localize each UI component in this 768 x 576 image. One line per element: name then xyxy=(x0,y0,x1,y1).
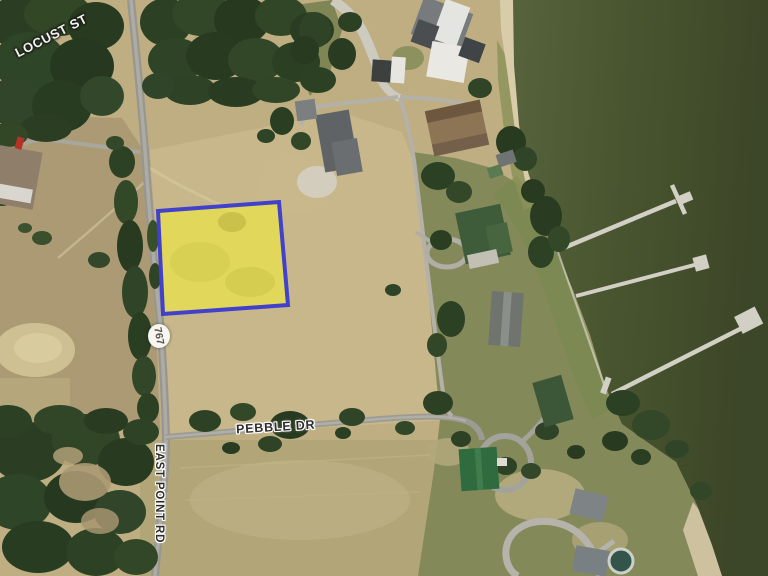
route-767-number: 767 xyxy=(152,326,167,345)
aerial-map: LOCUST ST 767 EAST POINT RD PEBBLE DR xyxy=(0,0,768,576)
parcel-highlight[interactable] xyxy=(158,202,288,314)
swimming-pool xyxy=(609,549,633,573)
garage-and-boat xyxy=(371,57,406,84)
aerial-imagery xyxy=(0,0,768,576)
route-767-shield: 767 xyxy=(148,324,170,348)
house-gray-shore xyxy=(488,291,524,347)
